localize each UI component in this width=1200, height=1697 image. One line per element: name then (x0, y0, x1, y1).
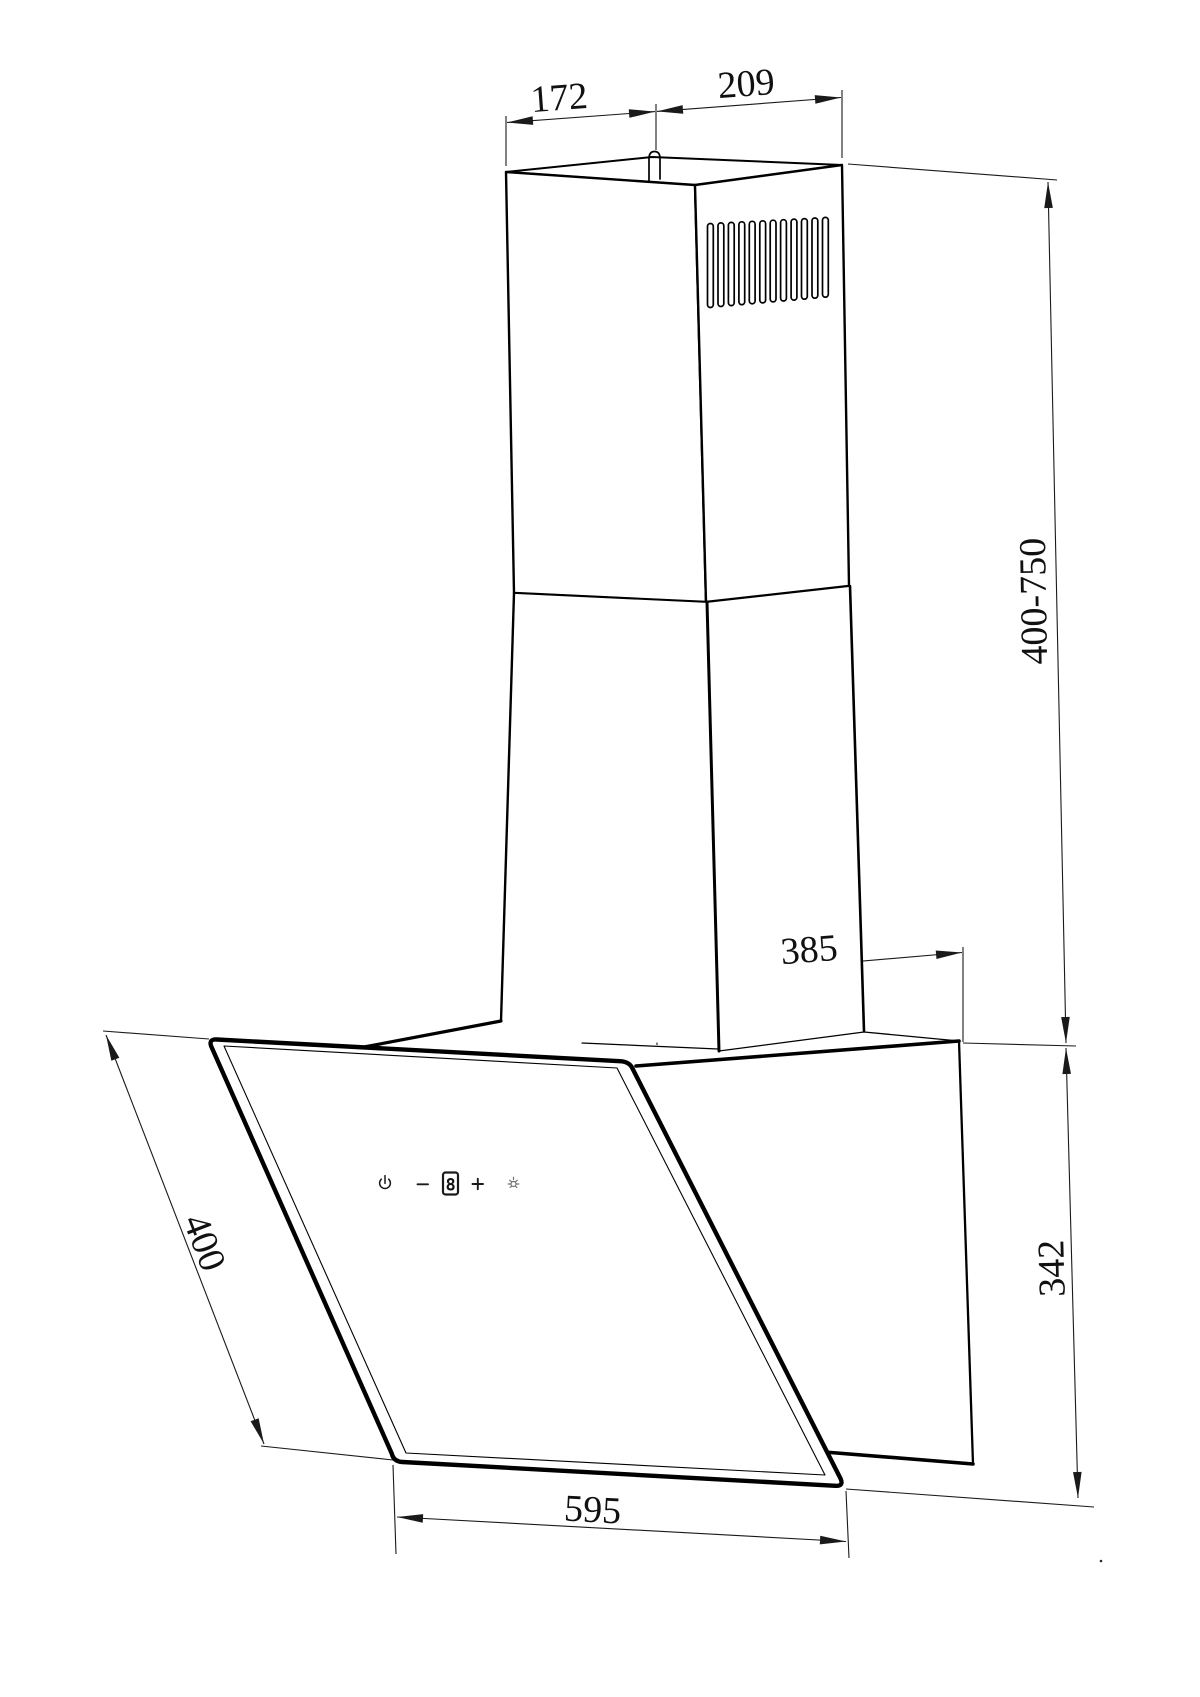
dimension-arrowhead (936, 950, 962, 959)
chimney-lower-section (501, 586, 864, 1051)
extension-line (103, 1031, 209, 1039)
dimension-arrowhead (507, 116, 533, 125)
dim-label-chimney-top-depth: 209 (716, 61, 776, 107)
extension-line (848, 164, 1057, 180)
dimension-arrowhead (1073, 1472, 1082, 1498)
extension-line (393, 1465, 396, 1554)
dimension-arrowhead (251, 1418, 264, 1444)
dimension-arrowhead (106, 1035, 119, 1061)
dimension-arrowhead (657, 105, 683, 114)
dim-label-chimney-base-depth: 385 (779, 927, 839, 973)
stray-ink-dot (1100, 1560, 1103, 1563)
dim-label-chimney-top-width: 172 (529, 75, 589, 121)
extension-line (261, 1446, 393, 1460)
extension-line (846, 1489, 1094, 1507)
dimension-line (397, 1517, 846, 1542)
dimension-arrowhead (629, 109, 655, 118)
chimney-upper-section (506, 152, 849, 603)
cooker-hood-dimension-drawing: 8 172 209 400-750 385 342 400 595 (0, 0, 1200, 1697)
dim-label-glass-front-depth: 400 (174, 1209, 234, 1277)
dim-label-hood-width: 595 (563, 1487, 622, 1532)
dimension-arrowhead (1044, 182, 1053, 208)
deck-back-edge-left (364, 1021, 501, 1047)
extension-line (963, 1043, 1076, 1046)
speed-display-digit: 8 (445, 1176, 455, 1196)
dim-label-rear-panel-height: 342 (1030, 1239, 1073, 1297)
dimension-arrowhead (815, 95, 841, 104)
extension-line (846, 1491, 849, 1558)
dimension-arrowhead (1062, 1048, 1071, 1074)
dimension-arrowhead (1061, 1017, 1070, 1043)
drawing-sheet: 8 172 209 400-750 385 342 400 595 (0, 0, 1200, 1697)
chimney-upper-front-face (506, 172, 706, 602)
chimney-lower-body (501, 586, 864, 1051)
dimension-arrowhead (397, 1514, 423, 1523)
dimension-arrowhead (820, 1536, 846, 1545)
dim-label-chimney-height-range: 400-750 (1012, 538, 1056, 665)
